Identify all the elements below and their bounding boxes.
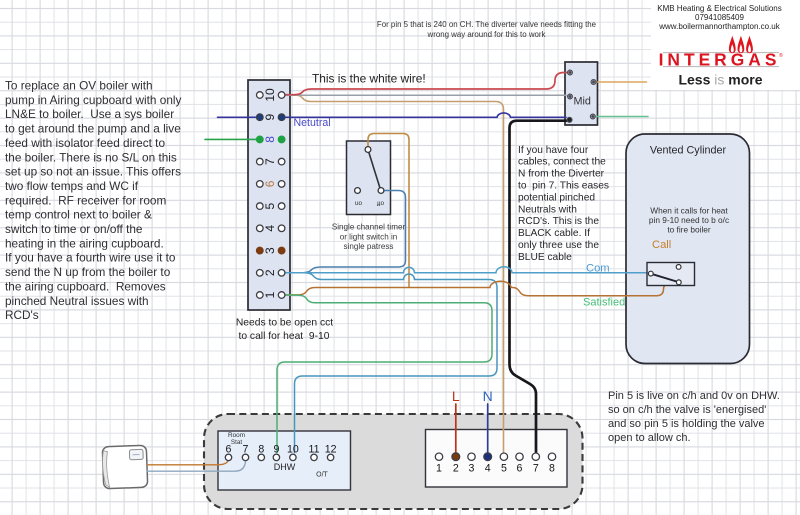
svg-text:N from the Diverter: N from the Diverter: [518, 169, 605, 180]
svg-text:®: ®: [779, 52, 783, 59]
svg-text:4: 4: [263, 225, 277, 232]
svg-text:6: 6: [263, 180, 277, 187]
svg-text:Single channel timer: Single channel timer: [332, 223, 406, 232]
svg-text:10: 10: [263, 88, 277, 102]
svg-text:the airing cupboard. Removes: the airing cupboard. Removes: [5, 279, 166, 293]
svg-text:open to allow ch.: open to allow ch.: [608, 432, 691, 444]
svg-text:so on c/h the valve is 'energi: so on c/h the valve is 'energised': [608, 404, 766, 416]
svg-text:wrong way around for this to w: wrong way around for this to work: [427, 30, 546, 39]
svg-text:07941085409: 07941085409: [695, 13, 744, 22]
svg-text:Mid: Mid: [574, 96, 591, 108]
svg-text:required. RF receiver for roo: required. RF receiver for room: [5, 193, 166, 207]
svg-text:1: 1: [436, 463, 442, 475]
svg-text:Satisfied: Satisfied: [583, 297, 625, 309]
svg-text:temp control next to boiler &: temp control next to boiler &: [5, 208, 152, 222]
svg-text:Vented Cylinder: Vented Cylinder: [650, 145, 727, 157]
svg-text:Netutral: Netutral: [294, 117, 331, 129]
svg-text:4: 4: [485, 463, 491, 475]
svg-text:to call for heat 9-10: to call for heat 9-10: [238, 331, 329, 342]
svg-text:to pin 7. This eases: to pin 7. This eases: [518, 181, 609, 192]
svg-text:7: 7: [263, 158, 277, 165]
svg-text:and so pin 5 is holding the va: and so pin 5 is holding the valve: [608, 418, 765, 430]
svg-text:DHW: DHW: [274, 462, 296, 472]
svg-text:If you have a fourth wire use: If you have a fourth wire use it to: [5, 251, 176, 265]
svg-text:two flow temps and WC if: two flow temps and WC if: [5, 179, 139, 193]
svg-text:BLUE cable: BLUE cable: [518, 252, 572, 263]
svg-text:8: 8: [263, 136, 277, 143]
svg-text:9: 9: [263, 114, 277, 121]
svg-text:LN&E to boiler. Use a sys boi: LN&E to boiler. Use a sys boiler: [5, 107, 174, 121]
svg-text:If you have four: If you have four: [518, 145, 589, 156]
svg-text:8: 8: [258, 443, 264, 455]
svg-text:cables, connect the: cables, connect the: [518, 157, 606, 168]
svg-text:BLACK cable. If: BLACK cable. If: [518, 228, 590, 239]
svg-text:3: 3: [469, 463, 475, 475]
svg-text:to get around the pump and a l: to get around the pump and a live: [5, 122, 181, 136]
svg-text:3: 3: [263, 247, 277, 254]
svg-text:Neutrals with: Neutrals with: [518, 204, 577, 215]
svg-text:Less is more: Less is more: [678, 72, 762, 88]
svg-text:9: 9: [273, 443, 279, 455]
svg-text:RCD's: RCD's: [5, 308, 39, 322]
svg-text:11: 11: [309, 443, 320, 455]
svg-text:N: N: [483, 388, 493, 404]
svg-text:the boiler. There is no S/L on: the boiler. There is no S/L on this: [5, 150, 177, 164]
svg-text:or light switch in: or light switch in: [340, 232, 398, 241]
svg-text:5: 5: [501, 463, 507, 475]
svg-text:INTERGAS: INTERGAS: [659, 49, 781, 69]
svg-text:Call: Call: [652, 239, 671, 251]
svg-text:7: 7: [533, 463, 539, 475]
svg-text:send the N up from the boiler: send the N up from the boiler to: [5, 265, 171, 279]
svg-text:Com: Com: [586, 263, 610, 275]
svg-text:on: on: [355, 200, 363, 207]
svg-text:feed with isolator feed direct: feed with isolator feed direct to: [5, 136, 165, 150]
svg-text:7: 7: [243, 443, 249, 455]
svg-text:KMB Heating & Electrical Solut: KMB Heating & Electrical Solutions: [657, 4, 782, 13]
svg-text:RCD's. This is the: RCD's. This is the: [518, 216, 599, 227]
svg-text:10: 10: [287, 443, 299, 455]
svg-text:1: 1: [263, 291, 277, 298]
svg-text:Needs to be open cct: Needs to be open cct: [236, 318, 333, 329]
svg-text:set up so not an issue. This o: set up so not an issue. This offers: [5, 165, 181, 179]
svg-text:When it calls for heat: When it calls for heat: [650, 205, 728, 215]
svg-text:off: off: [377, 200, 384, 207]
svg-text:2: 2: [453, 463, 459, 475]
svg-text:Pin 5 is live on c/h and 0v on: Pin 5 is live on c/h and 0v on DHW.: [608, 390, 780, 402]
svg-text:switch to time or on/off the: switch to time or on/off the: [5, 222, 143, 236]
svg-text:www.boilermannorthampton.co.uk: www.boilermannorthampton.co.uk: [658, 22, 781, 31]
svg-text:Stat: Stat: [231, 439, 243, 446]
svg-text:heating in the airing cupboard: heating in the airing cupboard.: [5, 236, 164, 250]
svg-text:to fire boiler: to fire boiler: [667, 224, 711, 234]
svg-text:For pin 5 that is 240 on CH. T: For pin 5 that is 240 on CH. The diverte…: [377, 20, 597, 29]
svg-text:2: 2: [263, 269, 277, 276]
svg-text:pin 9-10 need to b o/c: pin 9-10 need to b o/c: [649, 215, 729, 225]
svg-text:potential pinched: potential pinched: [518, 192, 595, 203]
svg-text:single patress: single patress: [344, 242, 394, 251]
svg-text:only three use the: only three use the: [518, 240, 599, 251]
svg-text:This is the white wire!: This is the white wire!: [312, 72, 426, 86]
svg-text:5: 5: [263, 202, 277, 209]
svg-text:6: 6: [517, 463, 523, 475]
svg-text:pinched Neutral issues with: pinched Neutral issues with: [5, 294, 149, 308]
svg-text:8: 8: [549, 463, 555, 475]
svg-text:pump in Airing cupboard with o: pump in Airing cupboard with only: [5, 93, 182, 107]
svg-text:To replace an OV boiler with: To replace an OV boiler with: [5, 79, 153, 93]
svg-text:O/T: O/T: [316, 472, 328, 479]
svg-text:12: 12: [325, 443, 337, 455]
svg-text:L: L: [452, 388, 460, 404]
